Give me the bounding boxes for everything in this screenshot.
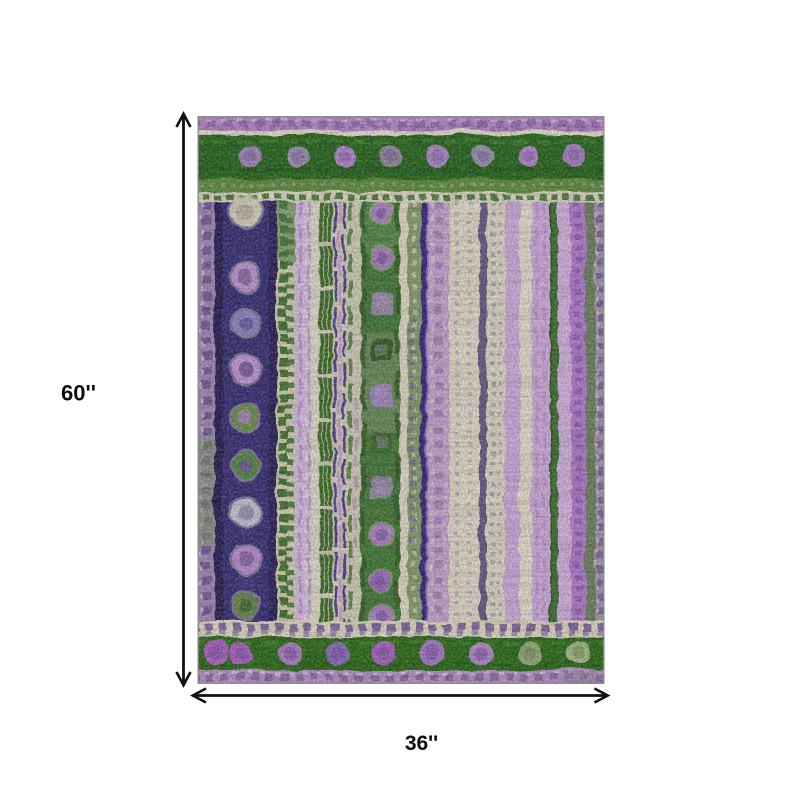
svg-text:36'': 36'' [405, 732, 438, 755]
svg-text:60'': 60'' [61, 381, 96, 406]
